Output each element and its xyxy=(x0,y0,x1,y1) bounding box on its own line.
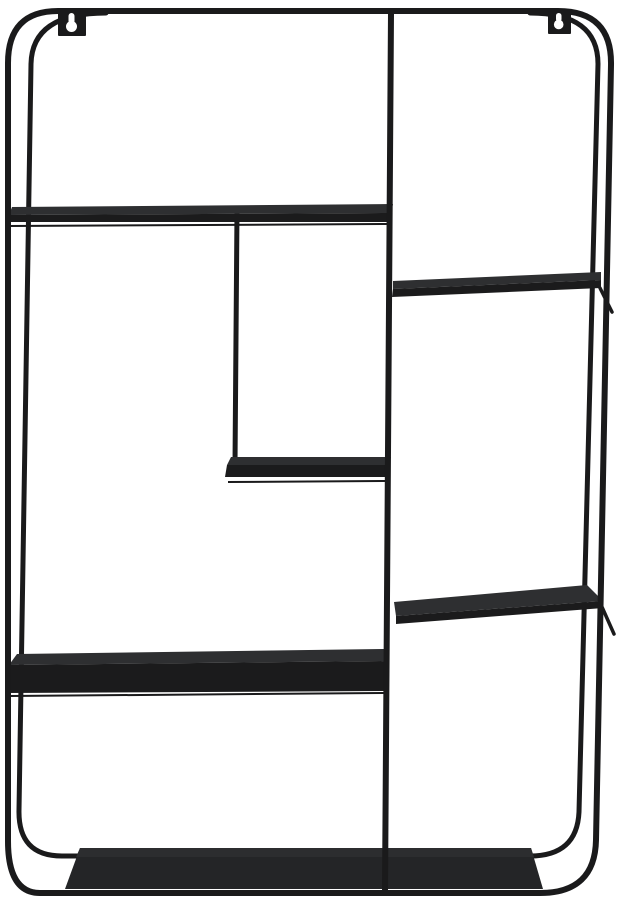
wall-shelf-illustration xyxy=(0,0,623,900)
bottom-shelf-top-surface xyxy=(76,848,534,857)
keyhole-mount-left-hole-cutout xyxy=(66,21,77,32)
photo-background xyxy=(0,0,623,900)
product-photo xyxy=(0,0,623,900)
keyhole-mount-right-hole-cutout xyxy=(554,20,564,30)
shelf-lower-left-front-edge xyxy=(8,661,387,693)
middle-shelf-post xyxy=(235,211,237,464)
shelf-middle-surface xyxy=(227,457,391,465)
shelf-middle-front-edge xyxy=(225,465,389,477)
keyhole-mount-right xyxy=(548,10,571,34)
shelf-middle-support-rail xyxy=(228,481,389,482)
keyhole-mount-left xyxy=(58,9,86,36)
